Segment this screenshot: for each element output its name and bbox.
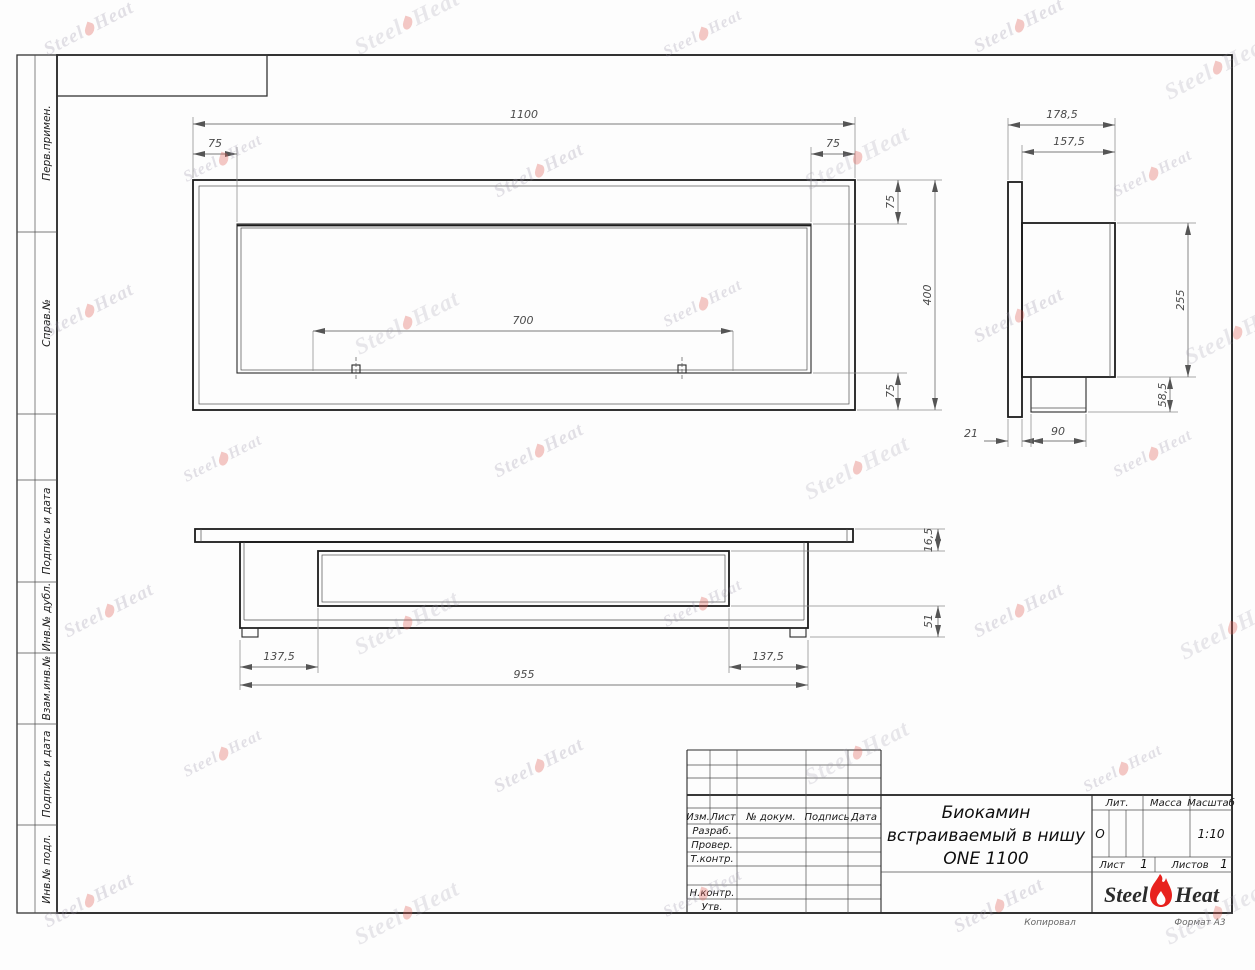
bottom-burner-frame <box>318 551 729 606</box>
front-outer-outline <box>193 180 855 410</box>
format-label: Формат А3 <box>1174 918 1226 928</box>
side-view <box>1008 182 1115 417</box>
scale-value: 1:10 <box>1198 827 1225 841</box>
revision-col-date: Дата <box>850 812 877 823</box>
doc-title-line2: встраиваемый в нишу <box>887 826 1086 846</box>
margin-label-inv-podl: Инв.№ подл. <box>41 834 53 903</box>
drawing-sheet: Перв.примен. Справ.№ Подпись и дата Инв.… <box>0 0 1255 970</box>
dim-side-body-depth: 157,5 <box>1053 135 1085 148</box>
dim-front-inset-top: 75 <box>884 195 897 209</box>
margin-labels: Перв.примен. Справ.№ Подпись и дата Инв.… <box>41 105 53 903</box>
list-label: Лист <box>1098 860 1126 871</box>
steelheat-logo: Steel Heat <box>1104 874 1220 907</box>
front-opening-outline <box>237 224 811 373</box>
margin-label-vzam-inv: Взам.инв.№ <box>41 656 53 721</box>
row-prover: Провер. <box>691 840 733 851</box>
sheet-frame <box>17 55 1232 913</box>
front-view-dimensions: 1100 75 75 700 75 75 400 <box>193 108 942 410</box>
side-view-dimensions: 178,5 157,5 255 58,5 21 90 <box>964 108 1196 447</box>
side-bottom-box <box>1031 377 1086 412</box>
top-left-stamp <box>57 55 267 96</box>
kopiroval-label: Копировал <box>1024 918 1076 928</box>
dim-front-inset-left: 75 <box>208 137 222 150</box>
massa-label: Масса <box>1150 798 1182 809</box>
blueprint-canvas: Перв.примен. Справ.№ Подпись и дата Инв.… <box>0 0 1255 970</box>
side-body-outline <box>1022 223 1115 377</box>
dim-side-flange-thickness: 21 <box>964 427 978 440</box>
dim-side-overall-depth: 178,5 <box>1046 108 1078 121</box>
dim-side-box-height: 58,5 <box>1156 383 1169 408</box>
doc-title-line3: ONE 1100 <box>943 849 1029 869</box>
margin-label-podpis-data-2: Подпись и дата <box>41 731 53 818</box>
lit-value: О <box>1095 827 1104 841</box>
listov-value: 1 <box>1220 857 1228 871</box>
masshtab-label: Масштаб <box>1187 797 1235 809</box>
revision-col-doc: № докум. <box>745 812 795 823</box>
logo-heat-text: Heat <box>1174 882 1220 907</box>
doc-title-line1: Биокамин <box>942 803 1031 823</box>
dim-bottom-body-width: 955 <box>514 668 535 681</box>
dim-bottom-left-offset: 137,5 <box>263 650 295 663</box>
row-utv: Утв. <box>702 902 723 913</box>
margin-label-podpis-data-1: Подпись и дата <box>41 488 53 575</box>
margin-label-inv-dubl: Инв.№ дубл. <box>41 583 53 652</box>
dim-bottom-right-offset: 137,5 <box>752 650 784 663</box>
row-razrab: Разраб. <box>692 825 731 837</box>
dim-side-body-height: 255 <box>1174 290 1187 311</box>
bottom-foot-left <box>242 628 258 637</box>
dim-bottom-lower-offset: 51 <box>922 614 935 628</box>
revision-col-izm: Изм. <box>686 812 710 823</box>
lit-label: Лит. <box>1104 798 1128 809</box>
dim-front-inset-bottom: 75 <box>884 384 897 398</box>
bottom-top-plate <box>195 529 853 542</box>
margin-label-sprav-no: Справ.№ <box>41 299 53 347</box>
front-view <box>193 180 855 410</box>
row-nkontr: Н.контр. <box>690 888 735 899</box>
drawing-border <box>57 55 1232 913</box>
dim-front-opening: 700 <box>513 314 534 327</box>
dim-bottom-top-offset: 16,5 <box>922 528 935 553</box>
dim-side-box-width: 90 <box>1051 425 1065 438</box>
logo-steel-text: Steel <box>1104 882 1149 907</box>
revision-col-list: Лист <box>709 812 737 823</box>
dim-front-height: 400 <box>921 285 934 306</box>
dim-front-inset-right: 75 <box>826 137 840 150</box>
bottom-foot-right <box>790 628 806 637</box>
title-block: Изм. Лист № докум. Подпись Дата Разраб. … <box>686 750 1235 928</box>
listov-label: Листов <box>1170 860 1208 871</box>
dim-front-width: 1100 <box>510 108 538 121</box>
list-value: 1 <box>1140 857 1148 871</box>
bottom-view <box>195 529 853 637</box>
revision-col-sign: Подпись <box>805 812 850 823</box>
row-tkontr: Т.контр. <box>690 854 733 865</box>
side-flange-outline <box>1008 182 1022 417</box>
margin-label-perv-primen: Перв.примен. <box>41 105 53 180</box>
bottom-view-dimensions: 16,5 51 137,5 137,5 955 <box>240 528 945 690</box>
